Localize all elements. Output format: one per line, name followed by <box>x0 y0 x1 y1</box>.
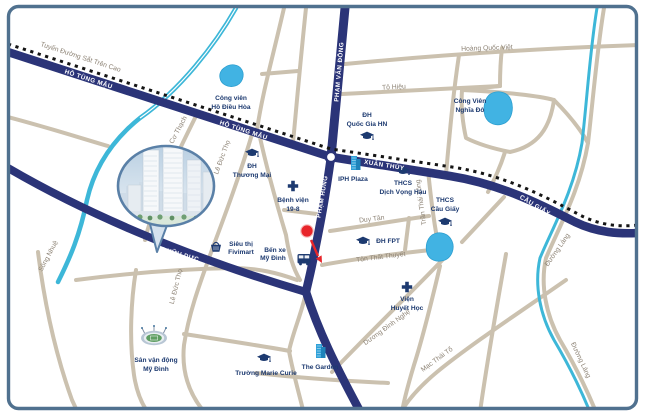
poi-label-dh-quoc-gia-2: Quốc Gia HN <box>347 120 388 128</box>
poi-label-cong-vien-ho-dieu-hoa-2: Hồ Điều Hòa <box>211 102 251 111</box>
poi-label-vien-huyet-hoc-2: Huyết Học <box>391 304 424 312</box>
poi-label-dh-thuong-mai-1: ĐH <box>247 163 257 170</box>
poi-label-cong-vien-nghia-do-2: Nghĩa Đô <box>456 107 485 114</box>
poi-label-ben-xe-2: Mỹ Đình <box>260 255 286 262</box>
poi-label-iph-plaza: IPH Plaza <box>338 176 368 183</box>
poi-label-thcs-dich-vong-hau-1: THCS <box>394 180 413 187</box>
roundabout <box>326 152 336 162</box>
poi-label-truong-marie-curie: Trường Marie Curie <box>235 370 297 377</box>
poi-label-dh-fpt: ĐH FPT <box>376 238 400 245</box>
street-label-to-hieu: Tô Hiệu <box>382 83 406 91</box>
poi-label-the-garden: The Garden <box>302 364 339 371</box>
location-map: Hoàng Quốc Việt Tô Hiệu Duy Tân Tôn Thất… <box>0 0 645 415</box>
poi-label-fivimart-2: Fivimart <box>228 249 254 256</box>
poi-label-thcs-cau-giay-2: Cầu Giấy <box>431 204 460 213</box>
lake-nghia-do <box>484 92 512 125</box>
minor-road <box>500 48 502 86</box>
poi-label-benh-vien-19-8-2: 19-8 <box>286 206 300 213</box>
poi-label-dh-quoc-gia-1: ĐH <box>362 112 372 119</box>
poi-label-thcs-dich-vong-hau-2: Dịch Vọng Hậu <box>380 189 427 196</box>
poi-label-cong-vien-ho-dieu-hoa-1: Công viên <box>215 95 247 102</box>
poi-label-thcs-cau-giay-1: THCS <box>436 197 455 204</box>
poi-label-ben-xe-1: Bến xe <box>264 246 286 254</box>
lake-ho-dieu-hoa <box>220 65 243 87</box>
poi-label-fivimart-1: Siêu thị <box>229 241 253 248</box>
poi-label-san-van-dong-1: Sân vận động <box>134 357 177 364</box>
map-canvas: Hoàng Quốc Việt Tô Hiệu Duy Tân Tôn Thất… <box>0 0 645 415</box>
poi-label-vien-huyet-hoc-1: Viện <box>400 296 414 303</box>
poi-label-cong-vien-nghia-do-1: Công Viên <box>454 98 486 105</box>
poi-label-dh-thuong-mai-2: Thương Mại <box>233 172 272 179</box>
poi-label-san-van-dong-2: Mỹ Đình <box>143 366 169 373</box>
lake-cau-giay <box>426 233 453 261</box>
poi-label-benh-vien-19-8-1: Bệnh viện <box>277 197 309 204</box>
